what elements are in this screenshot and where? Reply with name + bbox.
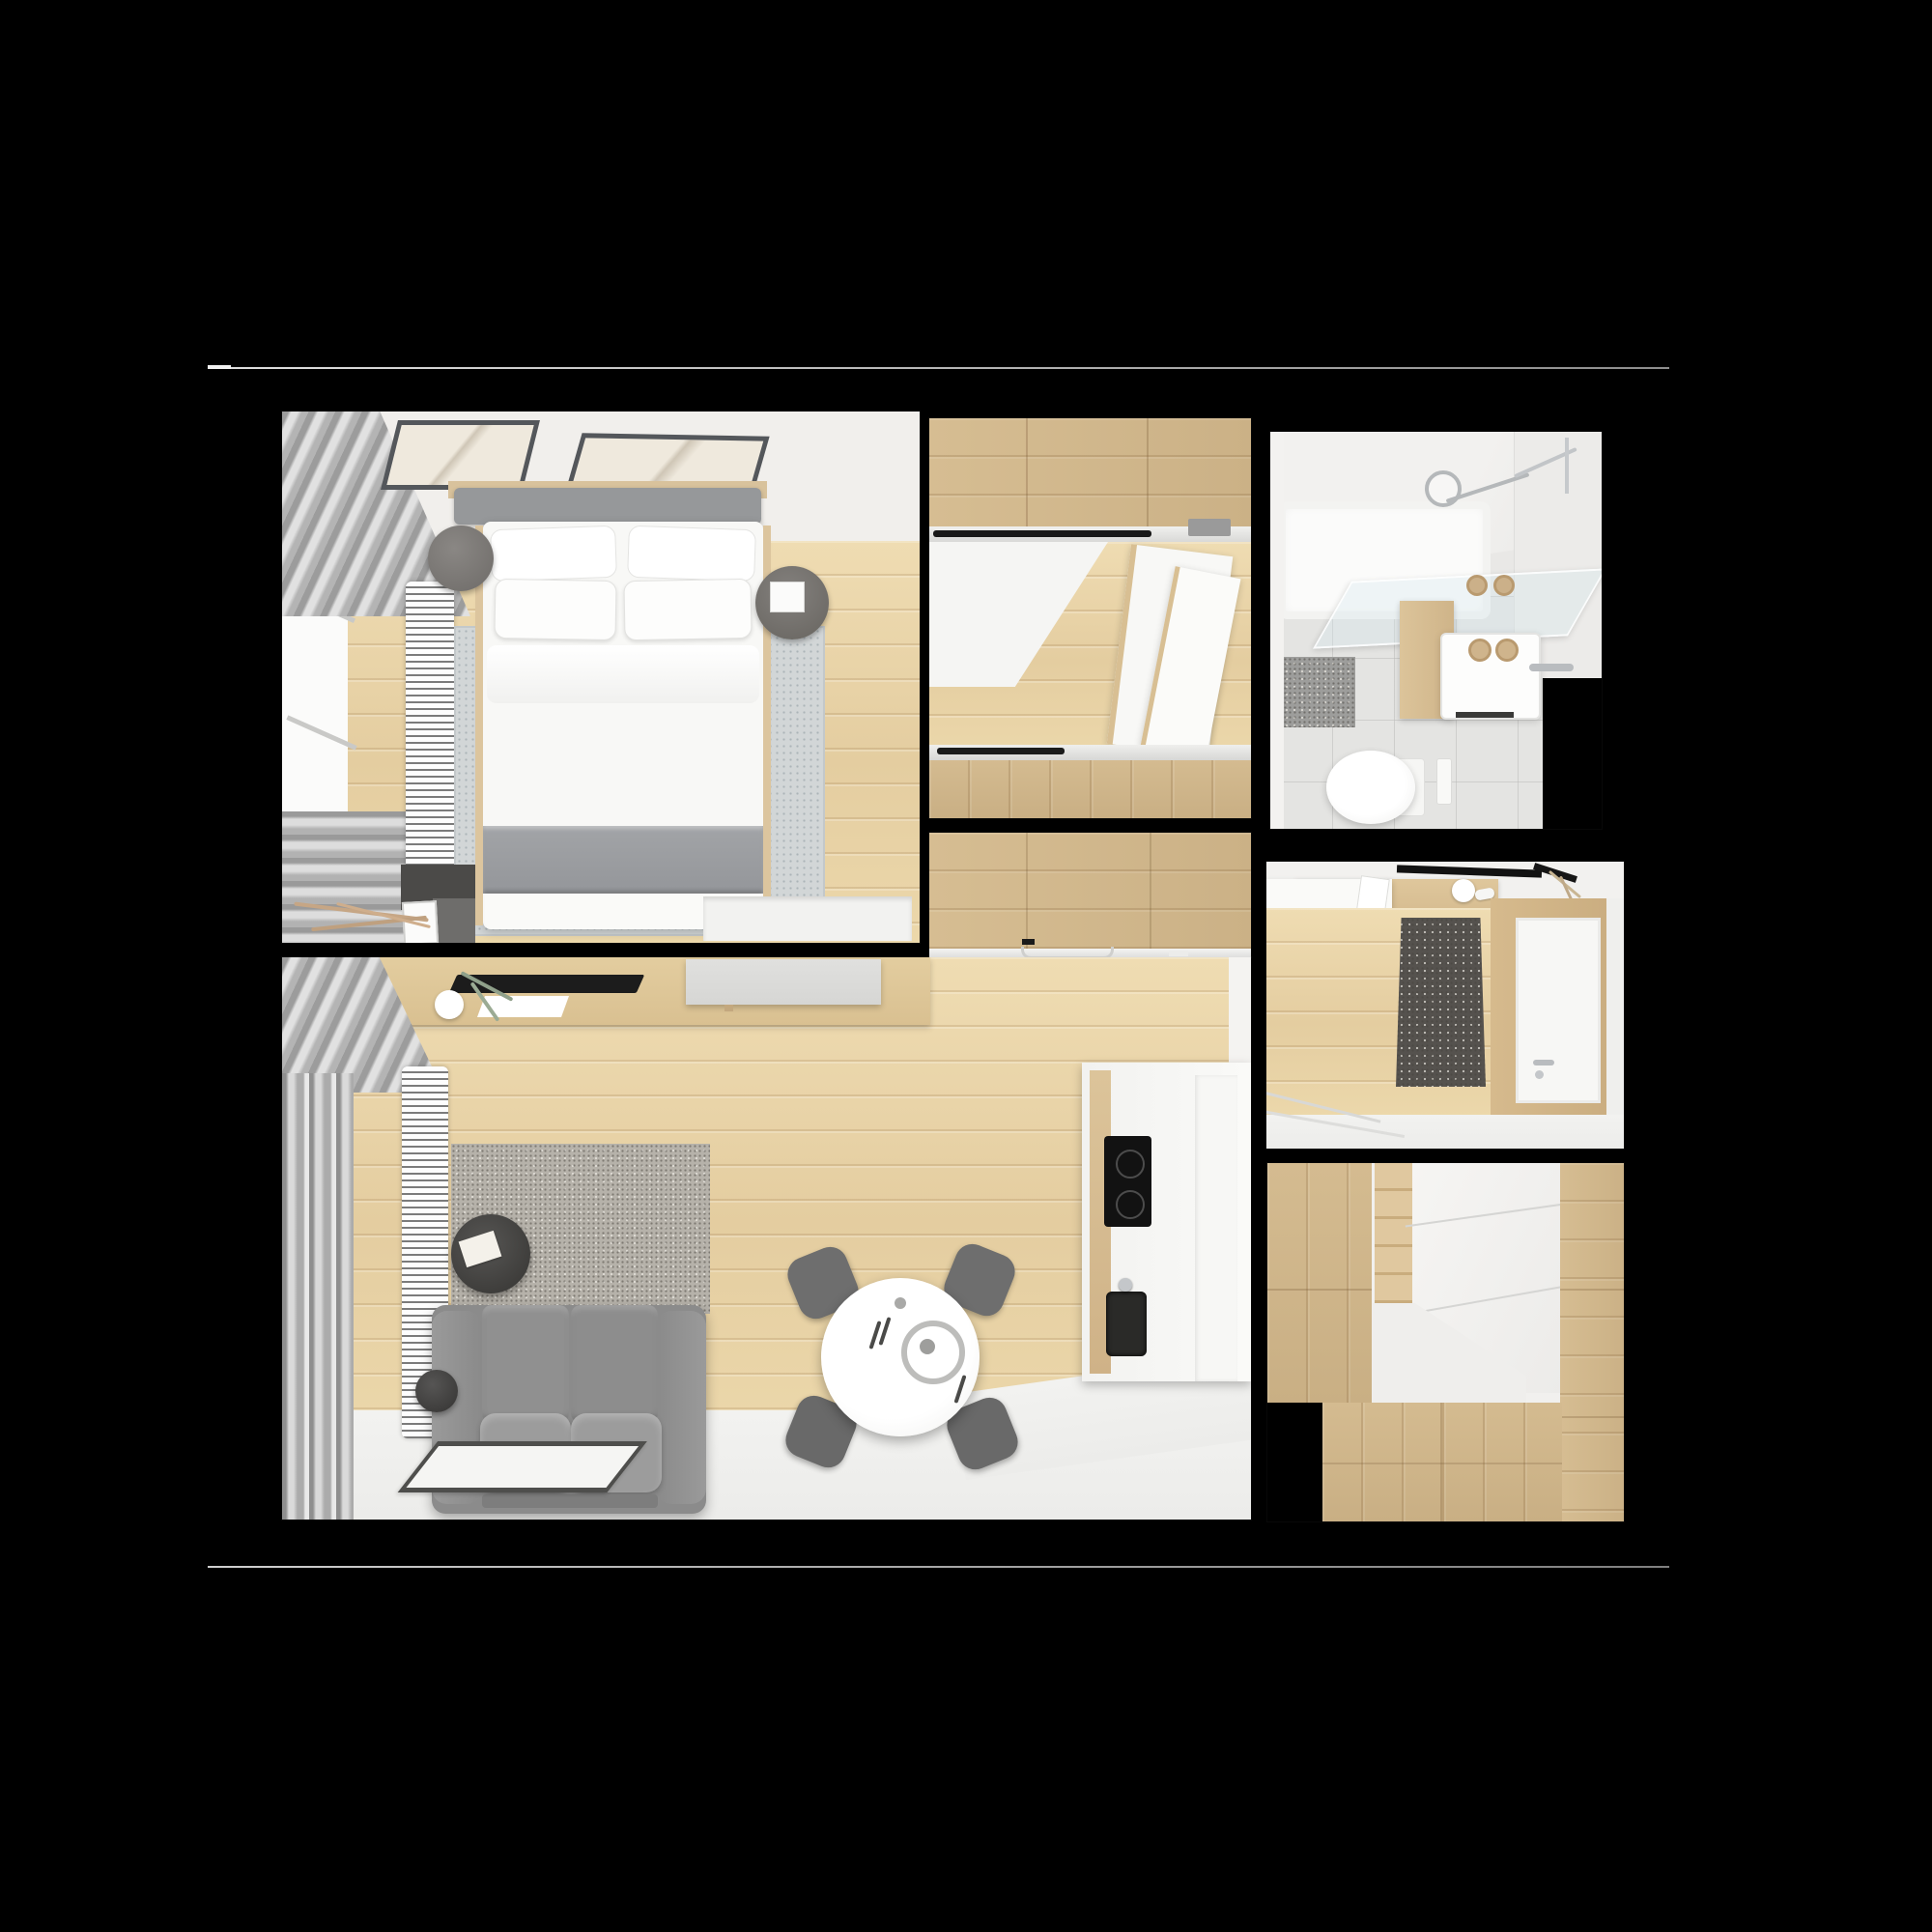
cabinet-seam [1150, 833, 1151, 951]
panel-notch-mask [1543, 678, 1602, 829]
pillow [494, 579, 616, 640]
bathroom-panel [1270, 432, 1602, 829]
wardrobe-door-seam [1406, 1283, 1577, 1315]
kitchen-cabinet-top [929, 833, 1251, 951]
nightstand-book [770, 582, 805, 612]
wardrobe-seam [1147, 418, 1149, 528]
bathroom-wall-left [1270, 432, 1284, 829]
toilet [1326, 751, 1415, 824]
table-dot [895, 1297, 906, 1309]
closet-seam [1560, 1416, 1624, 1418]
render-collage [0, 0, 1932, 1932]
plate-center [920, 1339, 935, 1354]
side-table-round [415, 1370, 458, 1412]
entry-door [1516, 918, 1601, 1103]
hob-burner [1116, 1190, 1145, 1219]
towel-roll [1495, 639, 1519, 662]
pillow [627, 526, 756, 582]
sliding-rail-top-groove [933, 530, 1151, 537]
counter-clip [1022, 939, 1035, 945]
desk-vase [435, 990, 464, 1019]
bed [483, 522, 763, 929]
sideboard-leg [724, 1005, 733, 1011]
towel-roll [1466, 575, 1488, 596]
wall-art-left [381, 420, 540, 490]
induction-hob [1104, 1136, 1151, 1227]
closet-plank-strip [1375, 1163, 1413, 1306]
closet-seam [1560, 1289, 1624, 1291]
top-divider-dash [208, 365, 231, 369]
tall-cabinet [1195, 1075, 1237, 1381]
hob-burner [1116, 1150, 1145, 1179]
rail-bracket [1188, 519, 1231, 536]
wardrobe-seam [1026, 418, 1028, 528]
entry-mat [1396, 918, 1486, 1087]
bottom-divider-line [208, 1566, 1669, 1568]
sideboard [686, 959, 881, 1005]
nightstand-left [428, 526, 494, 591]
door-trim [1606, 898, 1624, 1121]
bed-headboard [454, 488, 761, 525]
wardrobe-front [929, 760, 1251, 818]
kitchen-strip-panel [929, 833, 1251, 957]
closet-left-column [1267, 1163, 1372, 1403]
shower-rail [1565, 438, 1569, 494]
sofa-armrest-right [656, 1311, 706, 1504]
basin-faucet [1529, 664, 1574, 671]
sofa-seat-cushion [571, 1305, 658, 1423]
closet-bottom-cabinets [1322, 1403, 1562, 1521]
entry-panel [1266, 862, 1624, 1149]
sofa-seat-cushion [482, 1305, 569, 1423]
bedroom-panel [282, 412, 920, 943]
basin-shelf-edge [1456, 712, 1514, 718]
sofa-base [482, 1494, 658, 1508]
window-mullion [286, 715, 356, 750]
mug [1452, 879, 1475, 902]
wardrobe-door-seam [1406, 1201, 1578, 1227]
closet-right-column [1560, 1163, 1624, 1521]
sliding-rail-bottom-groove [937, 748, 1065, 754]
hallway-panel [929, 418, 1251, 818]
closet-seam [1267, 1289, 1372, 1291]
living-room-panel [282, 957, 1251, 1520]
bath-mat [1273, 657, 1355, 727]
coat-rack-bar [1397, 865, 1542, 877]
counter-bracket [1169, 951, 1188, 956]
door-lock [1535, 1070, 1544, 1079]
door-handle [1533, 1060, 1554, 1065]
counter-handle [1021, 947, 1114, 957]
closet-seam [1322, 1463, 1562, 1464]
panel-notch-mask [1267, 1403, 1322, 1521]
top-divider-line [231, 367, 1669, 369]
towel-roll [1493, 575, 1515, 596]
flush-plate [1436, 758, 1452, 805]
pillow [490, 526, 617, 582]
bed-blanket [483, 826, 763, 894]
closet-panel [1267, 1163, 1624, 1521]
pillow [623, 579, 752, 640]
wardrobe-top [929, 418, 1251, 528]
kitchen-sink [1106, 1292, 1147, 1356]
bedroom-bench [703, 896, 912, 941]
duvet-fold [487, 645, 759, 703]
cabinet-seam [1026, 833, 1028, 951]
doormat [398, 1441, 647, 1492]
towel-roll [1468, 639, 1492, 662]
bedroom-dresser-side [433, 898, 475, 943]
shower-head [1425, 470, 1462, 507]
sink-faucet [1119, 1278, 1132, 1292]
living-curtain-side [282, 1073, 354, 1520]
plate [901, 1321, 965, 1384]
